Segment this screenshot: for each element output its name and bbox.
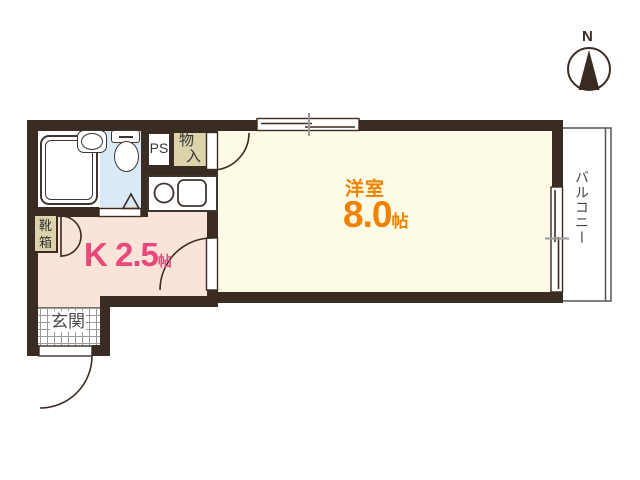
- wall-top-left: [27, 120, 258, 131]
- wall-right-upper: [552, 120, 563, 187]
- wall-room-divider-low: [207, 290, 218, 303]
- western-room-size: 8.0帖: [343, 194, 408, 236]
- shoe-cabinet-label-line1: 靴: [39, 218, 52, 233]
- western-room-size-unit: 帖: [391, 212, 408, 231]
- wash-basin-bowl: [81, 133, 103, 150]
- shoe-cabinet-label-line2: 箱: [39, 235, 52, 250]
- entrance-label: 玄関: [50, 311, 86, 332]
- north-arrow: [568, 48, 610, 90]
- north-label: N: [582, 28, 593, 45]
- wall-room-divider-mid: [207, 212, 218, 238]
- wall-entrance-bottom-right: [92, 345, 110, 356]
- kitchen-label: K 2.5帖: [84, 236, 172, 274]
- wall-kitchen-bottom: [100, 296, 218, 307]
- toilet-bowl: [114, 141, 139, 172]
- western-room-size-value: 8.0: [343, 194, 391, 235]
- kitchen-size-unit: 帖: [158, 253, 172, 269]
- pipe-space-label: PS: [148, 140, 170, 156]
- wall-bottom-main: [207, 292, 563, 303]
- wall-entrance-bottom-left: [27, 345, 39, 356]
- floor-plan: 洋室 8.0帖 K 2.5帖 玄関 靴箱 PS 物入 バルコニー N: [0, 0, 640, 480]
- kitchen-counter: [147, 175, 218, 212]
- wash-basin: [77, 130, 107, 153]
- balcony-label: バルコニー: [572, 170, 592, 270]
- kitchen-label-value: K 2.5: [84, 236, 158, 273]
- entrance-door: [39, 346, 92, 408]
- toilet-tank-lid-line: [119, 136, 133, 138]
- wall-top-right: [358, 120, 563, 131]
- storage-label-line1: 物: [174, 133, 206, 149]
- shoe-cabinet-label: 靴箱: [35, 217, 56, 251]
- storage-label-line2: 入: [174, 149, 206, 165]
- storage-label: 物入: [174, 133, 206, 165]
